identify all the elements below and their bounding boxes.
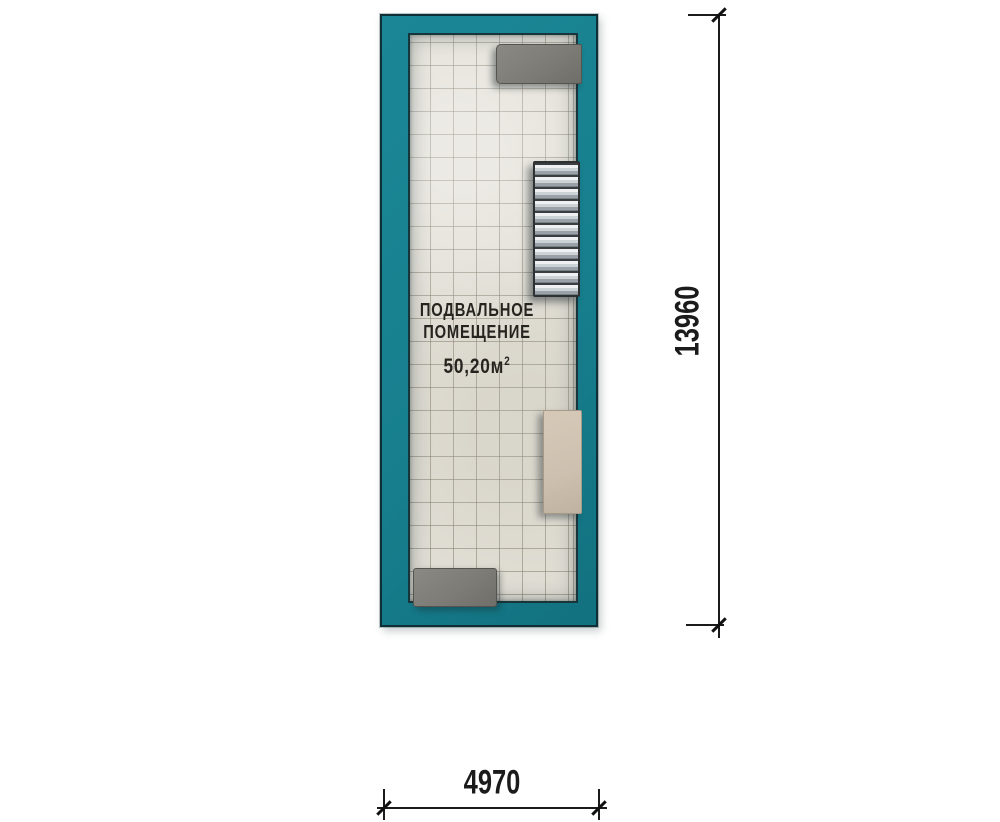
room-name-line1: ПОДВАЛЬНОЕ [417, 299, 537, 321]
bottom-gray-platform [413, 568, 497, 607]
beige-counter [543, 410, 582, 514]
horizontal-dimension-value: 4970 [464, 764, 521, 803]
room-name-line2: ПОМЕЩЕНИЕ [417, 321, 537, 343]
vertical-dimension-line [718, 14, 720, 638]
floor-plan-canvas: ПОДВАЛЬНОЕ ПОМЕЩЕНИЕ 50,20м2 13960 4970 [0, 0, 1000, 822]
floor-tiles: ПОДВАЛЬНОЕ ПОМЕЩЕНИЕ 50,20м2 [408, 33, 578, 603]
room-area-unit: м [491, 355, 505, 378]
vertical-dimension-value: 13960 [669, 286, 708, 357]
room-area: 50,20м2 [417, 350, 537, 378]
basement-plan-walls: ПОДВАЛЬНОЕ ПОМЕЩЕНИЕ 50,20м2 [380, 14, 598, 627]
room-label: ПОДВАЛЬНОЕ ПОМЕЩЕНИЕ 50,20м2 [404, 299, 550, 378]
horizontal-dimension-line [377, 807, 607, 809]
room-area-exponent: 2 [504, 354, 510, 368]
staircase [533, 161, 580, 297]
room-area-value: 50,20 [443, 355, 490, 378]
top-gray-platform [496, 44, 582, 84]
